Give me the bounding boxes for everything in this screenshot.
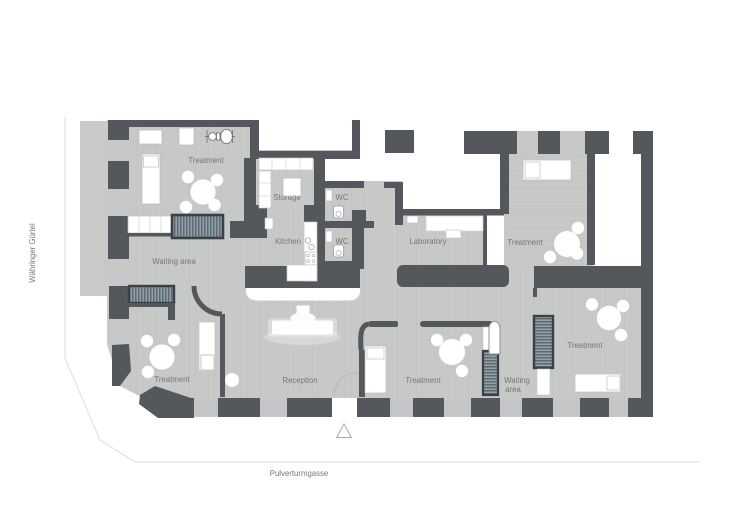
svg-text:Treatment: Treatment [567,341,603,350]
svg-text:WC: WC [336,237,349,246]
svg-text:Storage: Storage [273,193,300,202]
svg-text:Treatment: Treatment [188,156,224,165]
svg-text:Treatment: Treatment [154,375,190,384]
svg-text:Pulverturmgasse: Pulverturmgasse [270,469,329,478]
svg-text:Kitchen: Kitchen [275,237,301,246]
svg-text:Waiting area: Waiting area [152,257,196,266]
svg-text:Währinger Gürtel: Währinger Gürtel [28,223,37,283]
svg-text:Reception: Reception [282,376,317,385]
svg-text:Treatment: Treatment [405,376,441,385]
svg-text:area: area [505,385,521,394]
svg-text:Laboratory: Laboratory [409,237,446,246]
svg-text:Treatment: Treatment [507,238,543,247]
svg-text:Waiting: Waiting [504,376,530,385]
svg-text:WC: WC [336,193,349,202]
